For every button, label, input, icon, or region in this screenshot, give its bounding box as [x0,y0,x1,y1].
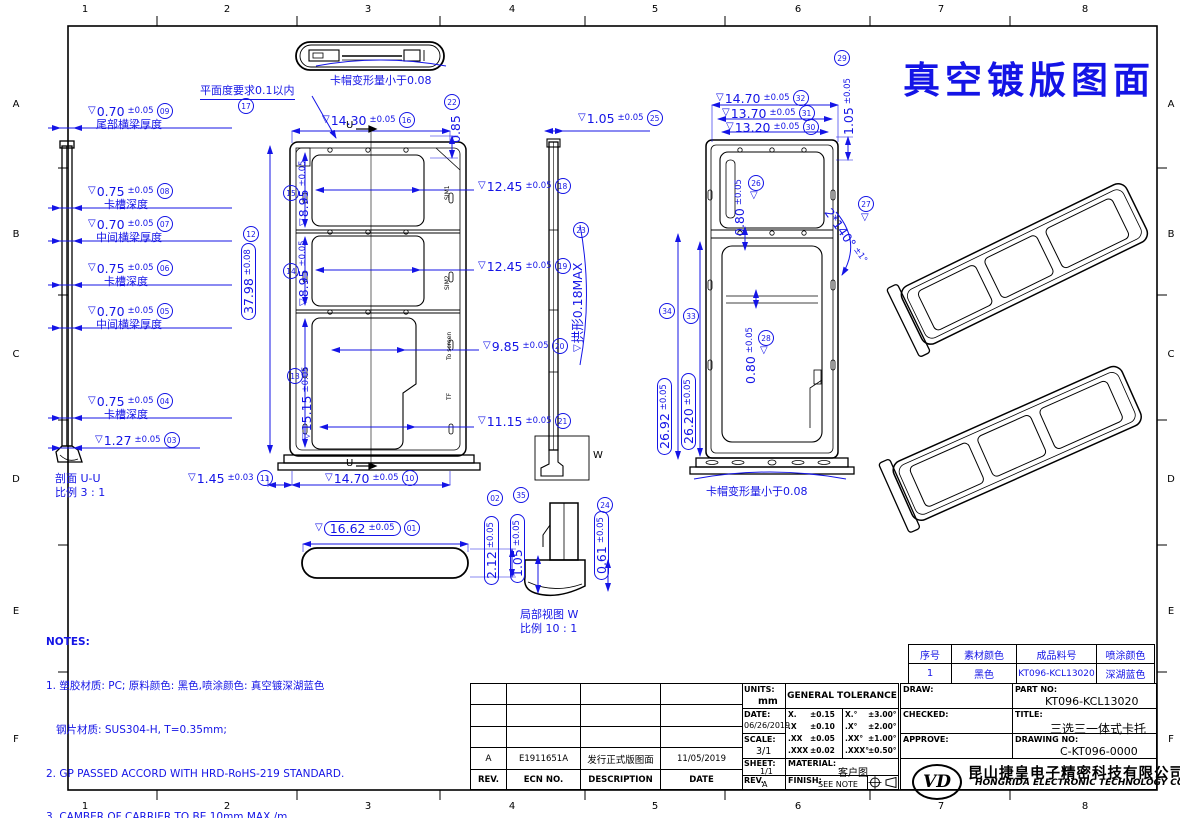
rev-header: DESCRIPTION [580,769,661,790]
dim-16: ▽ 14.30±0.0516 [322,112,415,128]
section-arrow-u-bottom: U [346,458,353,469]
grid-row-label: A [8,99,24,110]
grid-row-label: C [8,349,24,360]
dim-29-bubble: 29 [834,50,850,66]
finish-mark-icon: ▽ [299,218,309,226]
dim-34-bubble: 34 [659,303,675,319]
finish-mark-icon: ▽ [750,190,758,201]
approve-label: APPROVE: [900,733,1013,759]
rev-row-rev: A [470,747,507,770]
dim-26: 0.80±0.05 [733,179,746,236]
dim-03: ▽ 1.27±0.0503 [95,432,180,448]
finish-value: SEE NOTE [818,780,858,789]
gt-cell: X.° [845,710,857,719]
grid-row-label: F [8,734,24,745]
dim-18: ▽ 12.45±0.0518 [478,178,571,194]
detail-w-marker: W [593,450,603,461]
finish-mark-icon: ▽ [299,298,309,306]
grid-col-label: 7 [933,801,949,812]
grid-row-label: B [8,229,24,240]
finish-mark-icon: ▽ [726,122,734,132]
gt-cell: .XXX [788,746,808,755]
finish-mark-icon: ▽ [573,344,583,352]
grid-col-label: 6 [790,4,806,15]
units-value: mm [758,696,778,707]
finish-label: FINISH: [788,776,822,785]
company-logo: VD [912,764,962,800]
notes-block: NOTES: 1. 塑胶材质: PC; 原料颜色: 黑色,喷涂颜色: 真空镀深湖… [46,606,441,818]
dim-33-bubble: 33 [683,308,699,324]
dim-09-caption: 尾部横梁厚度 [96,116,162,132]
dim-04-caption: 卡槽深度 [104,406,148,422]
note-line: 3. CAMBER OF CARRIER TO BE 10mm MAX./m. [46,810,441,818]
materials-cell: KT096-KCL13020 [1016,663,1097,684]
projection-symbol-icon [868,776,898,789]
dim-28-bubble: 28 [758,330,774,346]
dim-21: ▽ 11.15±0.0521 [478,413,571,429]
materials-header: 序号 [908,644,952,664]
grid-row-label: D [1163,474,1179,485]
dim-24: 0.61±0.05 [594,511,609,580]
engineering-drawing-sheet: 1 2 3 4 5 6 7 8 1 2 3 4 5 6 7 8 A B C D … [0,0,1180,818]
rev-header: REV. [470,769,507,790]
dim-14: ▽ 8.95±0.05 [297,240,310,306]
finish-mark-icon: ▽ [478,261,486,271]
finish-mark-icon: ▽ [722,108,730,118]
rev-label: REV. [744,776,764,785]
scale-label: SCALE: [744,735,776,744]
material-label: MATERIAL: [788,759,836,768]
dim-11: ▽ 1.45±0.0311 [188,470,273,486]
detail-view-scale: 比例 10 : 1 [520,620,577,636]
finish-mark-icon: ▽ [188,473,196,483]
dim-27-bubble: 27 [858,196,874,212]
finish-mark-icon: ▽ [325,473,333,483]
dim-30: ▽ 13.20±0.0530 [726,119,819,135]
finish-mark-icon: ▽ [478,416,486,426]
grid-col-label: 2 [219,4,235,15]
grid-row-label: C [1163,349,1179,360]
finish-mark-icon: ▽ [322,115,330,125]
dim-14-bubble: 14 [283,263,299,279]
finish-mark-icon: ▽ [88,396,96,406]
cap-deform-note-top: 卡帽变形量小于0.08 [330,72,432,88]
grid-col-label: 5 [647,4,663,15]
rev-header: ECN NO. [506,769,581,790]
gt-cell: X. [788,710,797,719]
grid-row-label: F [1163,734,1179,745]
dim-29: 1.05±0.05 [842,78,855,135]
dim-02: 2.12±0.05 [484,516,499,585]
dim-26-bubble: 26 [748,175,764,191]
rev-row-date: 11/05/2019 [660,747,743,770]
drawingno-value: C-KT096-0000 [1060,745,1138,758]
dim-22: 0.85 [449,115,462,143]
grid-col-label: 1 [77,4,93,15]
rev-row-ecn: E1911651A [506,747,581,770]
slot-tf-label: TF [446,393,453,400]
general-tolerance-header: GENERAL TOLERANCE [785,683,899,709]
partno-value: KT096-KCL13020 [1045,695,1138,708]
dim-13-bubble: 13 [287,368,303,384]
dim-19: ▽ 12.45±0.0519 [478,258,571,274]
slot-sim2-label: SIM2 [444,275,451,290]
section-scale: 比例 3 : 1 [55,484,105,500]
finish-mark-icon: ▽ [302,432,312,440]
dim-06-caption: 卡槽深度 [104,273,148,289]
gt-cell: .XX [788,734,802,743]
dim-02-bubble: 02 [487,490,503,506]
dim-15-bubble: 15 [283,185,299,201]
finish-mark-icon: ▽ [861,212,869,223]
dim-07-caption: 中间横梁厚度 [96,229,162,245]
grid-row-label: E [8,606,24,617]
dim-35: 1.05±0.05 [510,514,525,583]
finish-mark-icon: ▽ [88,306,96,316]
dim-12: 37.98±0.08 [241,243,256,320]
finish-mark-icon: ▽ [483,341,491,351]
draw-label: DRAW: [900,683,1013,709]
materials-header: 喷涂颜色 [1096,644,1155,664]
gt-cell: .X° [845,722,857,731]
dim-08-caption: 卡槽深度 [104,196,148,212]
finish-mark-icon: ▽ [315,523,323,533]
dim-20: ▽ 9.85±0.0520 [483,338,568,354]
finish-mark-icon: ▽ [88,263,96,273]
checked-label: CHECKED: [900,708,1013,734]
finish-mark-icon: ▽ [578,113,586,123]
slot-sim1-label: SIM1 [444,185,451,200]
date-value: 06/26/2019 [744,721,790,730]
dim-12-bubble: 12 [243,226,259,242]
dim-23: ▽ 拱形0.18MAX [571,263,584,352]
gt-cell: ±0.50° [868,746,897,755]
gt-cell: ±0.02 [810,746,835,755]
section-arrow-u-top: U [346,120,353,131]
finish-mark-icon: ▽ [716,93,724,103]
dim-01: ▽ 16.62±0.05 01 [315,520,420,536]
notes-heading: NOTES: [46,635,441,650]
grid-row-label: E [1163,606,1179,617]
rev-row-description: 发行正式版图面 [580,747,661,770]
units-label: UNITS: [744,685,775,694]
company-name-en: HONGRIDA ELECTRONIC TECHNOLOGY CO.,LTD. [975,778,1180,788]
rev-header: DATE [660,769,743,790]
grid-col-label: 7 [933,4,949,15]
finish-mark-icon: ▽ [478,181,486,191]
dim-35-bubble: 35 [513,487,529,503]
grid-col-label: 8 [1077,4,1093,15]
gt-cell: ±3.00° [868,710,897,719]
finish-mark-icon: ▽ [88,106,96,116]
materials-cell: 黑色 [951,663,1017,684]
scale-value: 3/1 [756,746,771,757]
gt-cell: .X [788,722,797,731]
grid-col-label: 8 [1077,801,1093,812]
note-line: 2. GP PASSED ACCORD WITH HRD-RoHS-219 ST… [46,767,441,782]
grid-col-label: 4 [504,4,520,15]
dim-05-caption: 中间横梁厚度 [96,316,162,332]
dim-28: 0.80±0.05 [744,327,757,384]
materials-header: 成品料号 [1016,644,1097,664]
finish-mark-icon: ▽ [95,435,103,445]
dim-34: 26.92±0.05 [657,378,672,455]
finish-mark-icon: ▽ [760,345,768,356]
materials-header: 素材颜色 [951,644,1017,664]
title-block: A E1911651A 发行正式版图面 11/05/2019 REV. ECN … [470,683,1157,790]
materials-table: 序号 素材颜色 成品料号 喷涂颜色 1 黑色 KT096-KCL13020 深湖… [908,644,1155,684]
dim-24-bubble: 24 [597,497,613,513]
grid-col-label: 5 [647,801,663,812]
rev-value: A [762,780,767,789]
dim-10: ▽ 14.70±0.0510 [325,470,418,486]
gt-cell: .XX° [845,734,863,743]
gt-cell: .XXX° [845,746,869,755]
gt-cell: ±0.05 [810,734,835,743]
gt-cell: ±0.15 [810,710,835,719]
dim-25: ▽ 1.05±0.0525 [578,110,663,126]
slot-to-screen-label: To screen [446,332,453,360]
gt-cell: ±2.00° [868,722,897,731]
grid-row-label: B [1163,229,1179,240]
dim-32: ▽ 14.70±0.0532 [716,90,809,106]
gt-cell: ±0.10 [810,722,835,731]
dim-17-bubble: 17 [238,98,254,114]
finish-mark-icon: ▽ [88,186,96,196]
cap-deform-note-right: 卡帽变形量小于0.08 [706,483,808,499]
dim-23-bubble: 23 [573,222,589,238]
grid-row-label: D [8,474,24,485]
page-title: 真空镀版图面 [903,50,1155,104]
materials-cell: 1 [908,663,952,684]
grid-col-label: 4 [504,801,520,812]
dim-22-bubble: 22 [444,94,460,110]
gt-cell: ±1.00° [868,734,897,743]
note-line: 钢片材质: SUS304-H, T=0.35mm; [46,723,441,738]
materials-cell: 深湖蓝色 [1096,663,1155,684]
dim-33: 26.20±0.05 [681,373,696,450]
grid-col-label: 6 [790,801,806,812]
note-line: 1. 塑胶材质: PC; 原料颜色: 黑色,喷涂颜色: 真空镀深湖蓝色 [46,679,441,694]
grid-row-label: A [1163,99,1179,110]
finish-mark-icon: ▽ [88,219,96,229]
date-label: DATE: [744,710,770,719]
grid-col-label: 3 [360,4,376,15]
